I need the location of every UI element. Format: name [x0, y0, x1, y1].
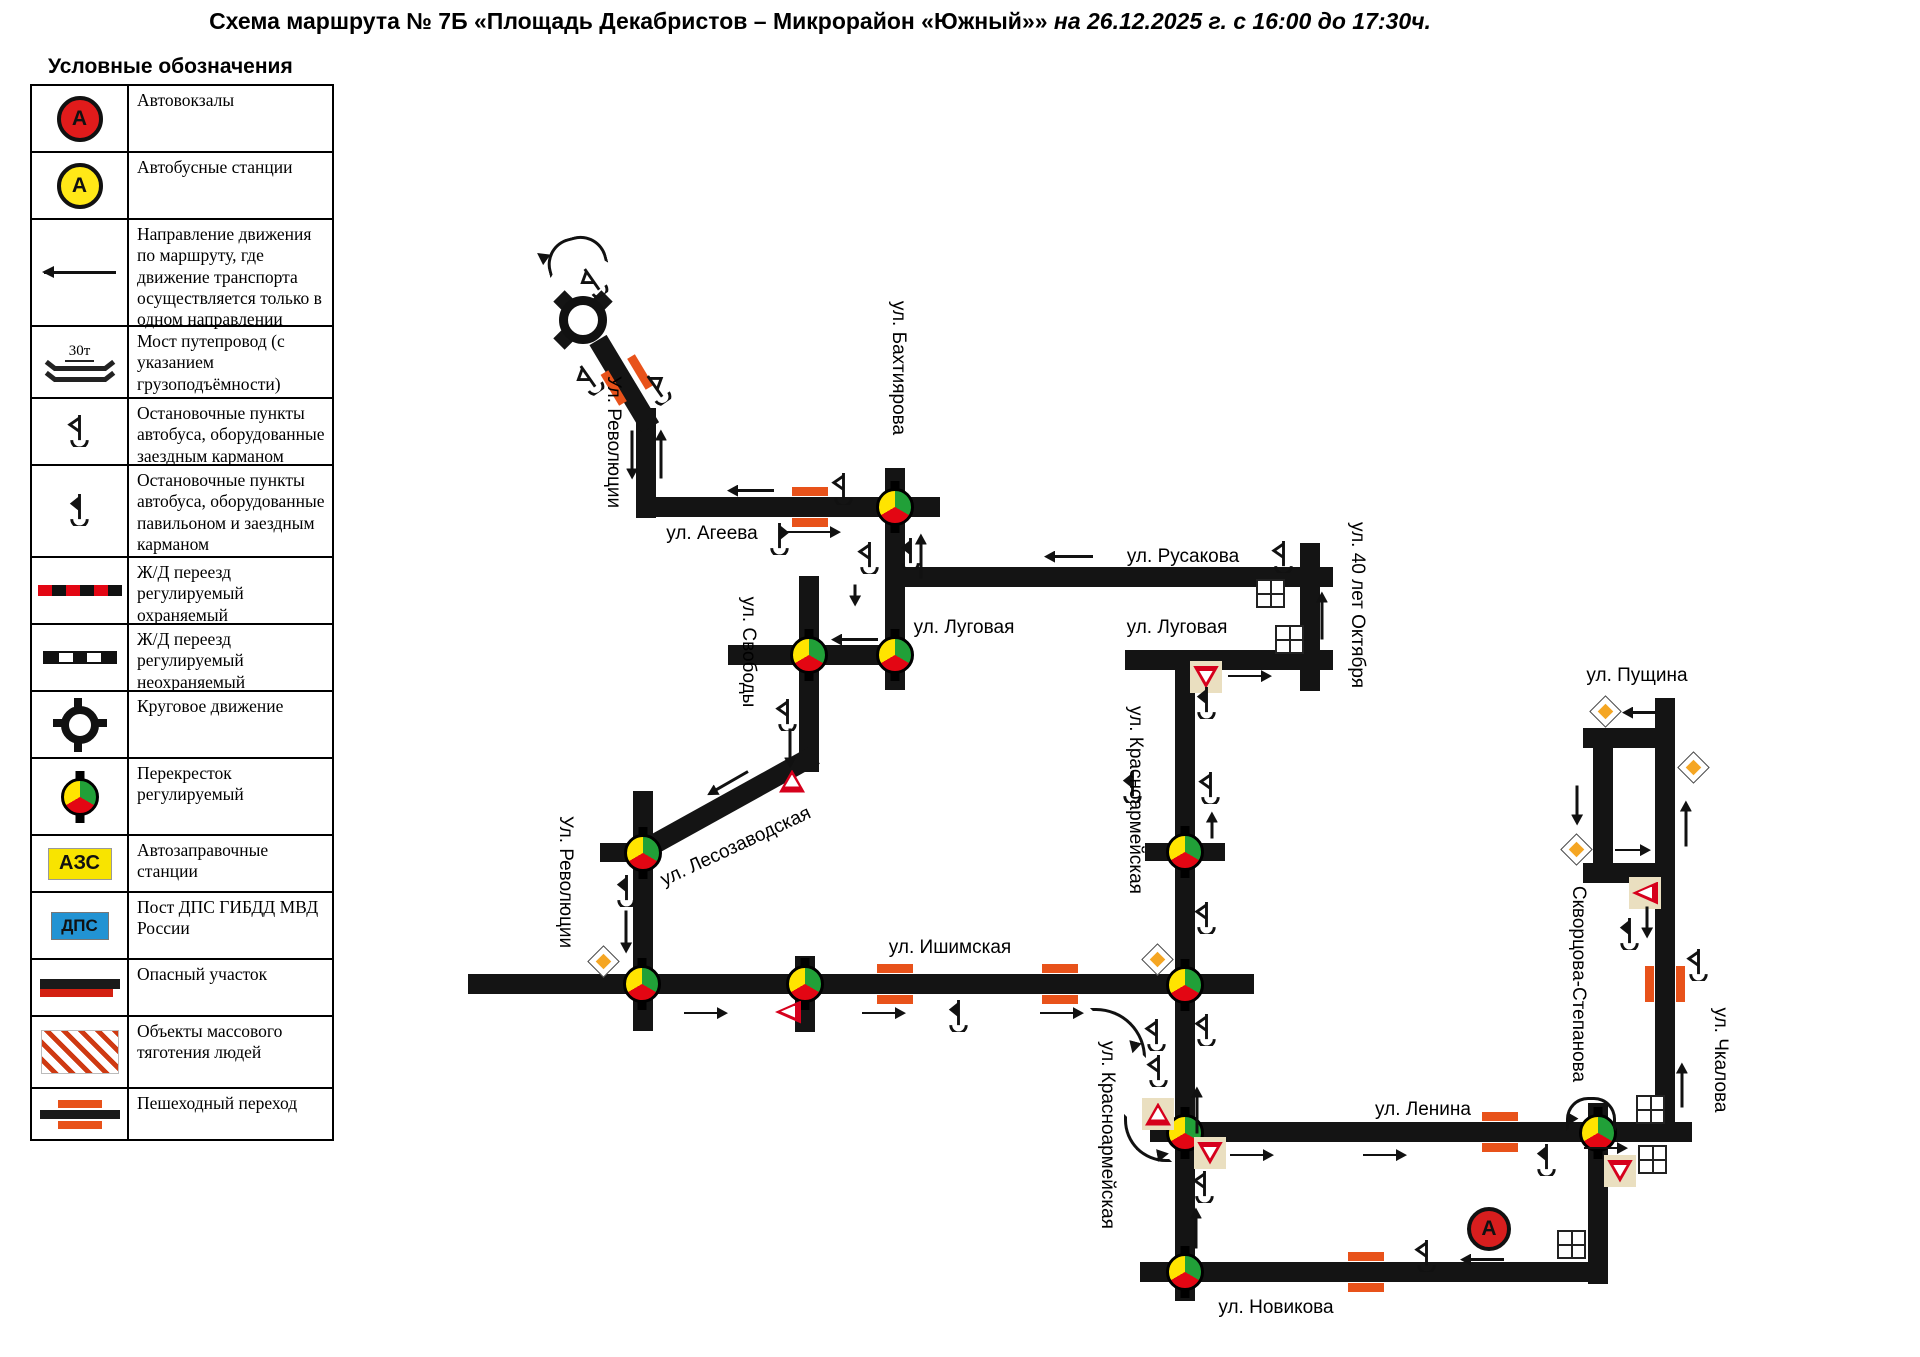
direction-arrow: [684, 1012, 727, 1015]
danger-section-icon: [40, 979, 120, 997]
bus-stop-pocket-icon: [1142, 1016, 1171, 1056]
bus-stop-pavilion-icon: [1532, 1141, 1561, 1181]
direction-arrow: [631, 430, 634, 478]
direction-arrow: [1045, 555, 1093, 558]
street-label: ул. Чкалова: [1709, 1007, 1731, 1112]
legend-label: Автобусные станции: [129, 153, 332, 218]
street-label: ул. Лесозаводская: [657, 803, 814, 892]
legend-label: Опасный участок: [129, 960, 332, 1015]
bus-stop-pavilion-icon: [1192, 684, 1221, 724]
legend-row: Опасный участок: [32, 960, 332, 1017]
legend-row: Направление движения по маршруту, где дв…: [32, 220, 332, 327]
direction-arrow: [625, 910, 628, 952]
traffic-light-icon: [876, 636, 914, 674]
bus-stop-pocket-icon: [773, 696, 802, 736]
pedestrian-crossing-icon: [792, 487, 828, 527]
main-road-sign-icon: [1677, 751, 1709, 783]
bus-terminal-icon: А: [57, 96, 103, 142]
rail-crossing-guarded-icon: [38, 585, 122, 596]
legend-row: Круговое движение: [32, 692, 332, 759]
bus-stop-pocket-icon: [1412, 1237, 1441, 1277]
roundabout-icon: [61, 706, 99, 744]
legend-label: Ж/Д переезд регулируемый охраняемый: [129, 558, 332, 623]
pedestrian-crossing-icon: [1348, 1252, 1384, 1292]
pedestrian-crossing-icon: [1645, 966, 1685, 1002]
traffic-light-icon: [790, 636, 828, 674]
route-map-page: Схема маршрута № 7Б «Площадь Декабристов…: [0, 0, 1920, 1357]
traffic-light-icon: [624, 834, 662, 872]
legend-label: Направление движения по маршруту, где дв…: [129, 220, 332, 325]
yield-sign-icon: [1604, 1155, 1636, 1187]
title-date: на 26.12.2025 г. с 16:00 до 17:30ч.: [1048, 8, 1431, 34]
bus-stop-pocket-icon: [1144, 1052, 1173, 1092]
bus-stop-pavilion-icon: [765, 520, 794, 560]
direction-arrow: [1196, 1087, 1199, 1133]
page-title: Схема маршрута № 7Б «Площадь Декабристов…: [60, 8, 1580, 35]
legend-label: Остановочные пункты автобуса, оборудован…: [129, 399, 332, 464]
direction-arrow: [1576, 785, 1579, 824]
bus-stop-pocket-icon: [1269, 538, 1298, 578]
direction-arrow: [1623, 711, 1656, 714]
direction-arrow: [1230, 1154, 1273, 1157]
legend-table: А Автовокзалы А Автобусные станции Напра…: [30, 84, 334, 1141]
bus-stop-pavilion-icon: [65, 491, 94, 531]
yield-sign-icon: [776, 765, 808, 797]
yield-sign-icon: [1629, 877, 1661, 909]
landmark-icon: [1636, 1095, 1665, 1124]
traffic-light-icon: [623, 965, 661, 1003]
bus-stop-pocket-icon: [1684, 946, 1713, 986]
street-label: ул. Русакова: [1127, 546, 1239, 568]
direction-arrow: [1681, 1063, 1684, 1107]
main-road-sign-icon: [587, 945, 619, 977]
legend-row: Перекресток регулируемый: [32, 759, 332, 836]
direction-arrow: [728, 489, 774, 492]
legend-row: Ж/Д переезд регулируемый неохраняемый: [32, 625, 332, 692]
bus-stop-pocket-icon: [1192, 1011, 1221, 1051]
legend-label: Объекты массового тяготения людей: [129, 1017, 332, 1087]
pedestrian-crossing-icon: [40, 1110, 120, 1119]
bus-stop-pocket-icon: [855, 539, 884, 579]
street-label: ул. Новикова: [1218, 1297, 1333, 1319]
bus-station-icon: А: [57, 163, 103, 209]
pedestrian-crossing-icon: [1482, 1112, 1518, 1152]
direction-arrow: [832, 638, 878, 641]
pedestrian-crossing-icon: [877, 964, 913, 1004]
direction-arrow: [660, 430, 663, 478]
direction-arrow: [1584, 1147, 1627, 1150]
bus-stop-pocket-icon: [65, 412, 94, 452]
legend-row: Пешеходный переход: [32, 1089, 332, 1139]
street-label: ул. Бахтиярова: [887, 301, 909, 435]
direction-arrow: [862, 1012, 905, 1015]
traffic-light-icon: [1166, 1253, 1204, 1291]
road-segment: [1300, 543, 1320, 691]
legend-row: Ж/Д переезд регулируемый охраняемый: [32, 558, 332, 625]
street-label: ул. Луговая: [1127, 617, 1228, 639]
police-post-icon: ДПС: [51, 912, 109, 940]
main-road-sign-icon: [1589, 695, 1621, 727]
bridge-icon: 30т: [54, 342, 106, 382]
street-label: ул. 40 лет Октября: [1346, 522, 1368, 688]
bus-stop-pocket-icon: [1192, 899, 1221, 939]
legend-label: Мост путепровод (с указанием грузоподъём…: [129, 327, 332, 397]
street-label: ул. Красноармейская: [1096, 1041, 1118, 1229]
legend-row: 30т Мост путепровод (с указанием грузопо…: [32, 327, 332, 399]
bus-stop-pocket-icon: [1190, 1168, 1219, 1208]
street-label: ул. Красноармейская: [1124, 706, 1146, 894]
bus-stop-pocket-icon: [1196, 769, 1225, 809]
legend-label: Ж/Д переезд регулируемый неохраняемый: [129, 625, 332, 690]
legend-row: ДПС Пост ДПС ГИБДД МВД России: [32, 893, 332, 960]
fuel-station-icon: АЗС: [48, 848, 112, 880]
street-label: ул. Агеева: [666, 523, 758, 545]
street-label: ул. Луговая: [914, 617, 1015, 639]
direction-arrow: [854, 584, 857, 605]
traffic-light-icon: [876, 488, 914, 526]
legend-label: Остановочные пункты автобуса, оборудован…: [129, 466, 332, 556]
title-main: Схема маршрута № 7Б «Площадь Декабристов…: [209, 8, 1047, 34]
direction-arrow: [1363, 1154, 1406, 1157]
landmark-icon: [1256, 579, 1285, 608]
legend-label: Автовокзалы: [129, 86, 332, 151]
bus-stop-pavilion-icon: [1615, 915, 1644, 955]
direction-arrow: [1321, 592, 1324, 639]
legend-row: Остановочные пункты автобуса, оборудован…: [32, 466, 332, 558]
legend-row: Объекты массового тяготения людей: [32, 1017, 332, 1089]
road-segment: [468, 974, 1254, 994]
street-label: ул. Ишимская: [889, 937, 1011, 959]
legend-label: Автозаправочные станции: [129, 836, 332, 891]
bus-stop-pavilion-icon: [944, 997, 973, 1037]
main-road-sign-icon: [1141, 943, 1173, 975]
bus-stop-pavilion-icon: [612, 872, 641, 912]
road-segment: [1655, 698, 1675, 1134]
legend-label: Пешеходный переход: [129, 1089, 332, 1139]
pedestrian-crossing-icon: [1042, 964, 1078, 1004]
road-segment: [1593, 728, 1613, 883]
turn-arrow: [1566, 1097, 1616, 1131]
direction-arrow: [1195, 1208, 1198, 1248]
yield-sign-icon: [772, 996, 804, 1028]
legend-row: АЗС Автозаправочные станции: [32, 836, 332, 893]
bus-stop-pocket-icon: [829, 470, 858, 510]
legend-row: А Автовокзалы: [32, 86, 332, 153]
street-label: Ул. Революции: [602, 376, 624, 508]
direction-arrow: [1646, 906, 1649, 937]
street-label: Скворцова-Степанова: [1567, 886, 1589, 1082]
crowd-attraction-icon: [41, 1030, 119, 1074]
street-label: Ул. Революции: [554, 816, 576, 948]
landmark-icon: [1275, 625, 1304, 654]
direction-arrow: [1615, 849, 1650, 852]
rail-crossing-unguarded-icon: [43, 651, 117, 664]
bus-terminal-icon: А: [1467, 1207, 1511, 1251]
direction-arrow: [789, 728, 792, 767]
legend-row: А Автобусные станции: [32, 153, 332, 220]
landmark-icon: [1557, 1230, 1586, 1259]
direction-arrow: [1461, 1258, 1504, 1261]
legend-label: Пост ДПС ГИБДД МВД России: [129, 893, 332, 958]
direction-arrow: [1040, 1012, 1083, 1015]
legend-label: Круговое движение: [129, 692, 332, 757]
direction-arrow: [920, 534, 923, 578]
one-way-arrow-icon: [44, 271, 116, 274]
street-label: ул. Ленина: [1375, 1099, 1471, 1121]
landmark-icon: [1638, 1145, 1667, 1174]
signal-intersection-icon: [61, 778, 99, 816]
street-label: ул. Свободы: [737, 597, 759, 708]
legend-heading: Условные обозначения: [48, 55, 293, 79]
yield-sign-icon: [1194, 1137, 1226, 1169]
main-road-sign-icon: [1560, 833, 1592, 865]
direction-arrow: [1685, 801, 1688, 846]
traffic-light-icon: [1166, 833, 1204, 871]
direction-arrow: [780, 531, 840, 534]
direction-arrow: [1211, 812, 1214, 838]
direction-arrow: [1228, 675, 1271, 678]
street-label: ул. Пущина: [1586, 665, 1687, 687]
legend-label: Перекресток регулируемый: [129, 759, 332, 834]
legend-row: Остановочные пункты автобуса, оборудован…: [32, 399, 332, 466]
